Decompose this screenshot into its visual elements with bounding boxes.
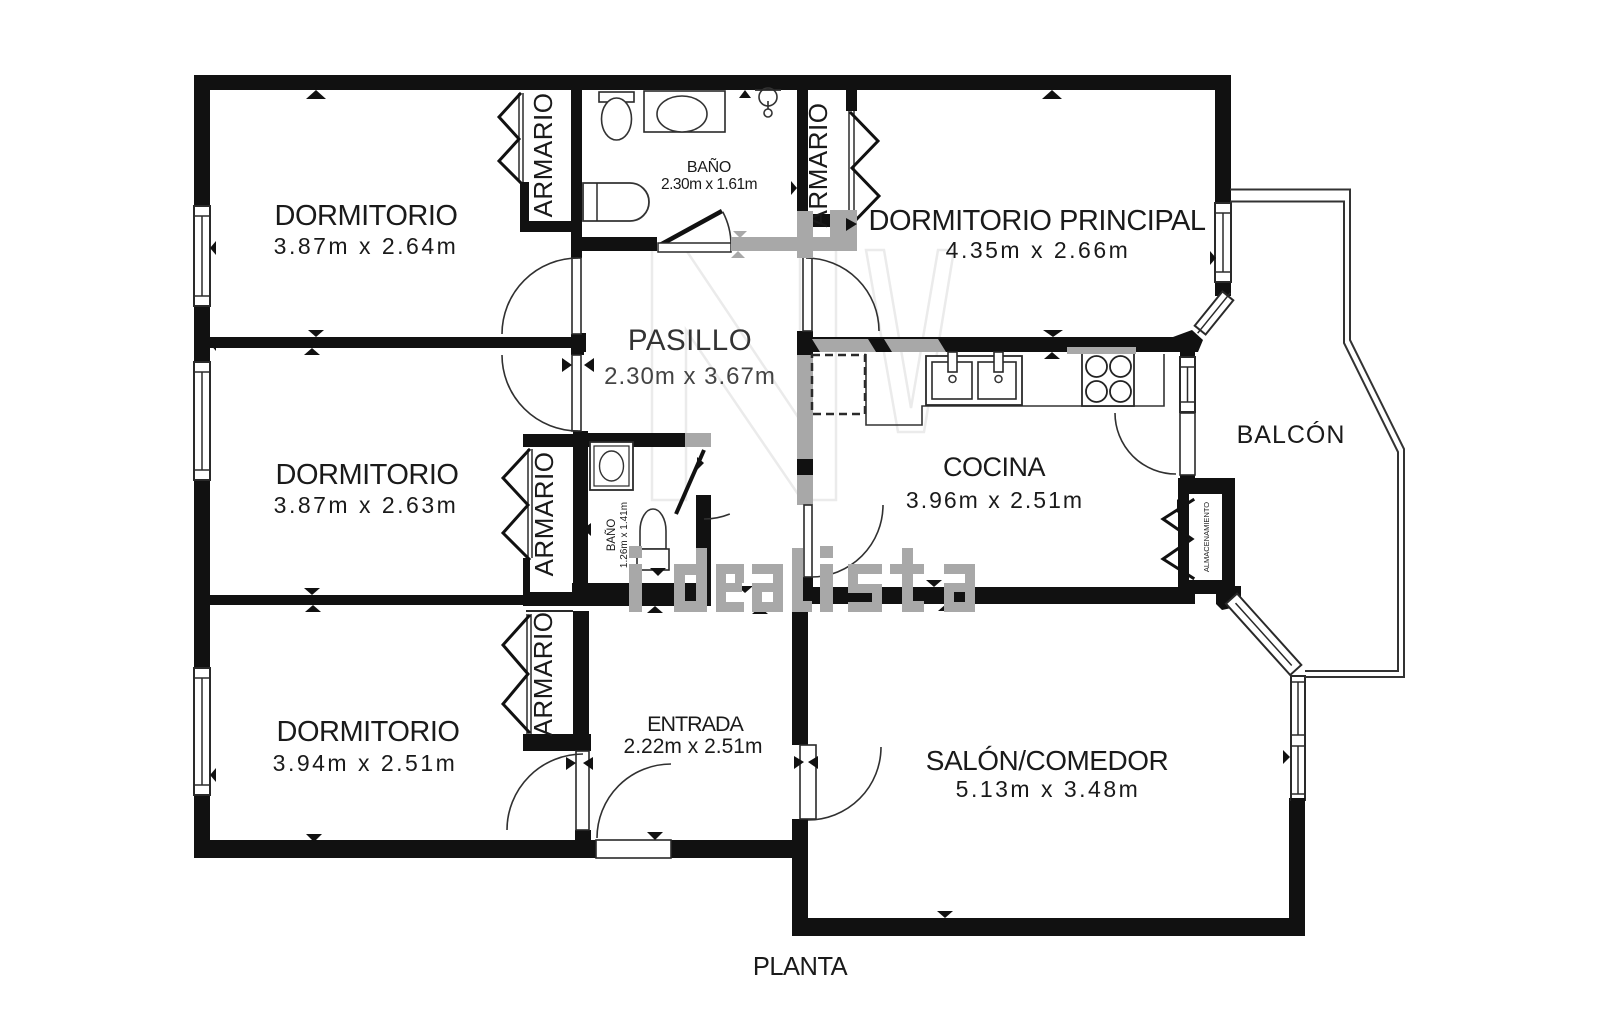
svg-text:ARMARIO: ARMARIO [528, 93, 558, 218]
svg-text:ARMARIO: ARMARIO [803, 103, 833, 228]
svg-text:3.94m x 2.51m: 3.94m x 2.51m [273, 750, 458, 776]
svg-text:1.26m x 1.41m: 1.26m x 1.41m [619, 502, 630, 568]
svg-text:BAÑO: BAÑO [687, 156, 731, 176]
svg-text:DORMITORIO: DORMITORIO [277, 716, 460, 748]
svg-text:ENTRADA: ENTRADA [647, 712, 744, 736]
svg-text:3.87m x 2.64m: 3.87m x 2.64m [274, 233, 459, 259]
svg-text:BAÑO: BAÑO [605, 519, 618, 552]
svg-text:2.22m x 2.51m: 2.22m x 2.51m [624, 735, 763, 758]
svg-text:COCINA: COCINA [943, 452, 1045, 482]
svg-text:ALMACENAMIENTO: ALMACENAMIENTO [1202, 502, 1211, 572]
svg-text:ARMARIO: ARMARIO [528, 612, 558, 737]
svg-text:PASILLO: PASILLO [628, 324, 752, 357]
svg-text:DORMITORIO: DORMITORIO [275, 200, 458, 232]
svg-text:3.87m x 2.63m: 3.87m x 2.63m [274, 492, 459, 518]
svg-text:DORMITORIO PRINCIPAL: DORMITORIO PRINCIPAL [869, 205, 1206, 237]
svg-text:2.30m x 1.61m: 2.30m x 1.61m [661, 176, 757, 193]
svg-text:BALCÓN: BALCÓN [1237, 420, 1346, 449]
svg-text:SALÓN/COMEDOR: SALÓN/COMEDOR [926, 745, 1168, 776]
svg-text:DORMITORIO: DORMITORIO [276, 459, 459, 491]
svg-text:3.96m x 2.51m: 3.96m x 2.51m [906, 487, 1084, 513]
svg-text:ARMARIO: ARMARIO [529, 452, 559, 577]
svg-text:5.13m x 3.48m: 5.13m x 3.48m [956, 776, 1141, 802]
svg-text:2.30m x 3.67m: 2.30m x 3.67m [604, 363, 776, 390]
svg-text:4.35m x 2.66m: 4.35m x 2.66m [946, 237, 1131, 263]
svg-text:PLANTA: PLANTA [753, 953, 848, 981]
